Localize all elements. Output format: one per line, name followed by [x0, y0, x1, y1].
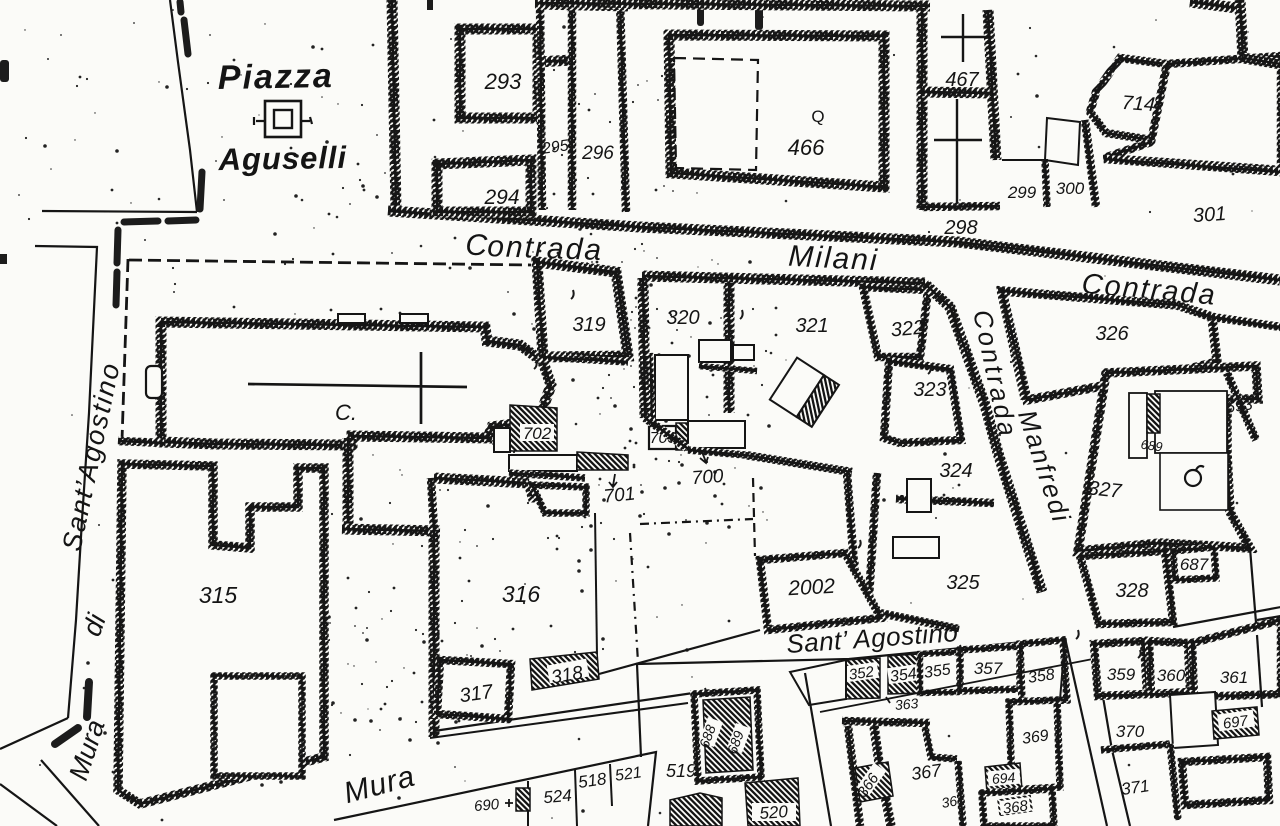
svg-text:467: 467 — [945, 69, 979, 91]
svg-text:Piazza: Piazza — [218, 57, 335, 97]
svg-text:320: 320 — [666, 307, 699, 329]
svg-text:Milani: Milani — [788, 240, 880, 278]
svg-text:352: 352 — [848, 663, 876, 683]
svg-text:357: 357 — [974, 659, 1003, 678]
svg-text:Aguselli: Aguselli — [217, 140, 348, 177]
svg-text:Q: Q — [811, 107, 824, 126]
svg-text:519: 519 — [666, 761, 696, 781]
svg-text:689: 689 — [1140, 437, 1164, 455]
svg-text:694: 694 — [991, 769, 1016, 787]
svg-text:714: 714 — [1121, 92, 1156, 116]
svg-text:294: 294 — [483, 186, 519, 209]
svg-text:321: 321 — [795, 315, 828, 337]
svg-text:328: 328 — [1115, 580, 1148, 602]
svg-text:C: C — [465, 229, 488, 263]
svg-text:300: 300 — [1056, 179, 1085, 198]
svg-text:367: 367 — [910, 760, 944, 784]
svg-text:359: 359 — [1107, 665, 1136, 684]
svg-text:697: 697 — [1222, 712, 1250, 732]
svg-text:520: 520 — [759, 802, 789, 823]
svg-text:298: 298 — [943, 217, 977, 239]
svg-text:370: 370 — [1116, 722, 1145, 741]
svg-text:518: 518 — [577, 769, 608, 792]
svg-text:368: 368 — [1002, 797, 1030, 817]
svg-text:315: 315 — [199, 582, 238, 608]
svg-text:325: 325 — [946, 572, 980, 594]
svg-text:326: 326 — [1095, 323, 1129, 345]
svg-text:466: 466 — [788, 135, 825, 160]
svg-text:701: 701 — [603, 483, 637, 507]
svg-text:327: 327 — [1087, 477, 1123, 502]
svg-text:299: 299 — [1007, 183, 1037, 202]
svg-text:361: 361 — [1220, 668, 1248, 687]
svg-text:360: 360 — [1157, 666, 1186, 685]
svg-text:700: 700 — [691, 466, 725, 489]
svg-text:524: 524 — [543, 786, 573, 807]
svg-text:319: 319 — [572, 314, 605, 336]
svg-text:371: 371 — [1120, 776, 1151, 799]
svg-text:322: 322 — [890, 317, 925, 342]
svg-text:293: 293 — [484, 69, 522, 94]
svg-text:363: 363 — [894, 695, 919, 713]
svg-text:324: 324 — [939, 460, 972, 482]
svg-text:2002: 2002 — [787, 575, 836, 600]
svg-text:702: 702 — [523, 424, 552, 443]
svg-text:301: 301 — [1192, 203, 1227, 227]
svg-text:323: 323 — [913, 379, 946, 401]
svg-text:296: 296 — [581, 143, 614, 164]
svg-text:316: 316 — [502, 581, 541, 607]
svg-text:C.: C. — [335, 400, 357, 425]
svg-text:687: 687 — [1180, 555, 1209, 574]
svg-text:690: 690 — [473, 796, 500, 815]
